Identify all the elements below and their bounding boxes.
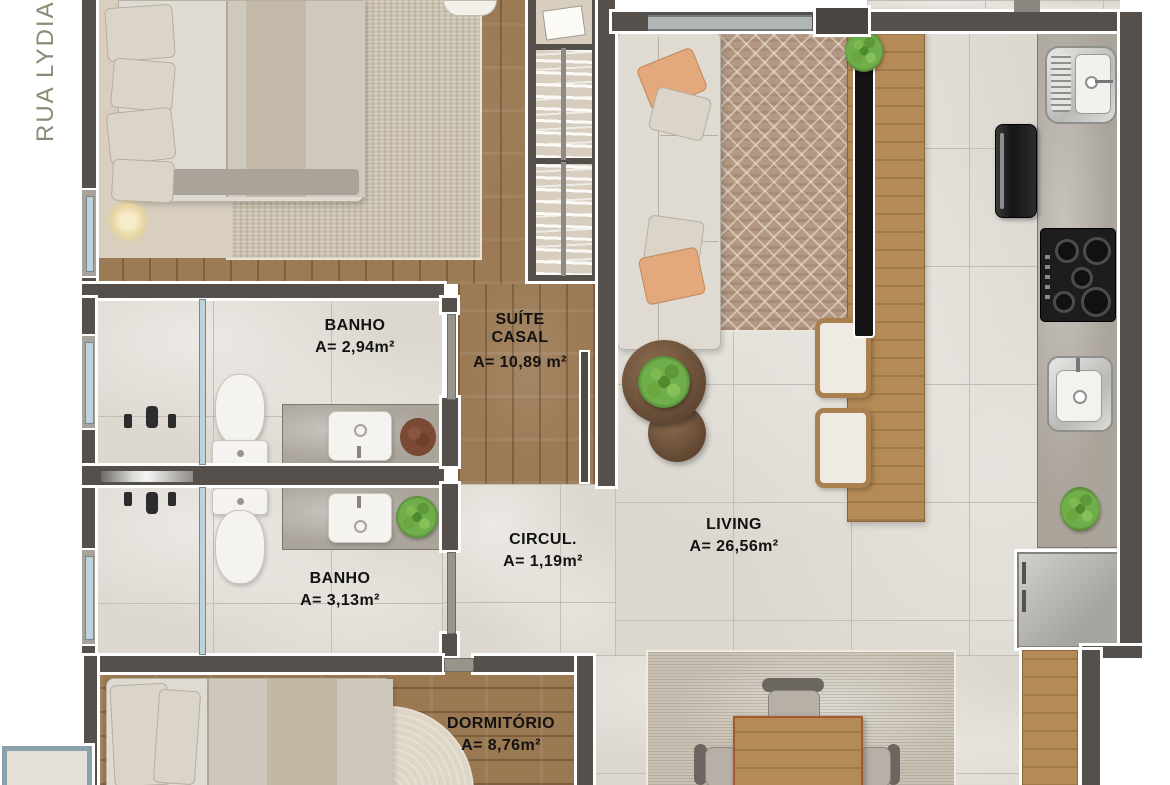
stove-burner xyxy=(1053,291,1075,313)
sink-faucet xyxy=(357,496,361,508)
room-area: A= 1,19m² xyxy=(468,553,618,571)
bed-pillow xyxy=(111,158,175,203)
fridge-handle xyxy=(1022,590,1026,612)
sink-drain xyxy=(354,424,367,437)
room-area: A= 3,13m² xyxy=(255,592,425,610)
bed-pillow xyxy=(153,689,201,785)
oven xyxy=(995,124,1037,218)
sink-faucet xyxy=(1095,80,1113,83)
door-banho2 xyxy=(447,552,456,634)
stove-knobs xyxy=(1045,255,1050,299)
dining-table xyxy=(733,716,863,785)
wall xyxy=(598,0,615,486)
closet-top-shelf xyxy=(536,0,592,44)
closet-rod xyxy=(561,162,566,276)
refrigerator xyxy=(1017,552,1119,648)
room-name: CASAL xyxy=(452,329,588,347)
shower-valve xyxy=(124,492,132,506)
shower-faucet xyxy=(146,492,158,514)
label-dormitorio: DORMITÓRIO A= 8,76m² xyxy=(411,715,591,755)
bed-blanket-band xyxy=(267,679,337,785)
label-living: LIVING A= 26,56m² xyxy=(654,516,814,556)
room-area: A= 8,76m² xyxy=(411,737,591,755)
window-banho1 xyxy=(85,342,94,424)
wall xyxy=(442,484,458,550)
dining-chair xyxy=(858,744,900,785)
plant-vanity xyxy=(396,496,438,538)
label-circulacao: CIRCUL. A= 1,19m² xyxy=(468,531,618,571)
fridge-handle xyxy=(1022,562,1026,584)
stove-cooktop xyxy=(1040,228,1116,322)
room-area: A= 2,94m² xyxy=(270,339,440,357)
chair-seat xyxy=(859,747,891,785)
room-area: A= 26,56m² xyxy=(654,538,814,556)
stove-burner xyxy=(1071,267,1093,289)
bed-pillow xyxy=(104,4,176,63)
window-living xyxy=(648,15,812,31)
bed-pillow xyxy=(105,107,176,166)
room-name: DORMITÓRIO xyxy=(411,715,591,733)
balcony-planter xyxy=(2,746,92,785)
toilet-bowl xyxy=(215,374,265,446)
living-rug xyxy=(700,30,848,330)
floor-terrace-strip xyxy=(867,0,1120,12)
sink-drain xyxy=(354,520,367,533)
wall xyxy=(82,284,444,298)
plant-kitchen xyxy=(1060,487,1100,531)
room-name: LIVING xyxy=(654,516,814,534)
sink-drainboard xyxy=(1051,54,1071,112)
room-name: CIRCUL. xyxy=(468,531,618,549)
toilet-tank xyxy=(212,440,268,467)
shower-glass-partition xyxy=(199,487,206,655)
label-banho2: BANHO A= 3,13m² xyxy=(255,570,425,610)
floor-circulacao xyxy=(442,484,618,658)
wall xyxy=(442,398,458,466)
street-label: RUA LYDIA xyxy=(32,0,60,142)
window-suite xyxy=(86,196,94,272)
label-banho1: BANHO A= 2,94m² xyxy=(270,317,440,357)
armchair-partial xyxy=(443,0,497,16)
closet-box xyxy=(542,5,586,40)
sink-faucet xyxy=(357,446,361,458)
flush-button xyxy=(237,498,244,505)
plant-island xyxy=(845,30,883,72)
dining-chair xyxy=(694,744,736,785)
wall xyxy=(474,656,578,672)
wall xyxy=(442,298,457,312)
tv xyxy=(855,38,873,336)
room-name: BANHO xyxy=(270,317,440,335)
wall xyxy=(82,656,442,672)
floor-plan: RUA LYDIA xyxy=(0,0,1170,785)
wall xyxy=(442,634,457,656)
shower-valve xyxy=(168,414,176,428)
wall-stub xyxy=(1014,0,1040,12)
shower-valve xyxy=(124,414,132,428)
shower-faucet xyxy=(146,406,158,428)
stove-burner xyxy=(1083,237,1111,265)
shower-niche xyxy=(100,470,194,483)
sink-faucet xyxy=(1076,358,1080,372)
wall xyxy=(1082,650,1100,785)
vanity-sink xyxy=(328,411,392,461)
door-dormitorio xyxy=(444,658,474,672)
label-suite-casal: SUÍTE CASAL A= 10,89 m² xyxy=(452,311,588,372)
room-name: BANHO xyxy=(255,570,425,588)
stove-burner xyxy=(1055,239,1079,263)
bed-blanket-band xyxy=(246,1,306,197)
oven-handle xyxy=(1000,133,1004,209)
kitchen-sink-drainer xyxy=(1045,46,1117,124)
laundry-sink xyxy=(1047,356,1113,432)
bed-pillow xyxy=(110,57,176,112)
window-banho2 xyxy=(85,556,94,640)
cabinet xyxy=(1022,650,1078,785)
sink-drain xyxy=(1073,390,1087,404)
bedside-lamp xyxy=(110,203,146,239)
plant-vanity xyxy=(400,418,436,456)
closet-rod xyxy=(561,48,566,160)
room-name: SUÍTE xyxy=(452,311,588,329)
stove-burner xyxy=(1081,287,1111,317)
room-area: A= 10,89 m² xyxy=(452,354,588,372)
plant-coffee-table xyxy=(638,356,690,408)
entry-door xyxy=(816,8,868,34)
shower-valve xyxy=(168,492,176,506)
shower-glass-partition xyxy=(199,299,206,465)
flush-button xyxy=(237,450,244,457)
vanity-sink xyxy=(328,493,392,543)
bar-stool xyxy=(815,408,871,488)
wall xyxy=(1120,12,1142,656)
